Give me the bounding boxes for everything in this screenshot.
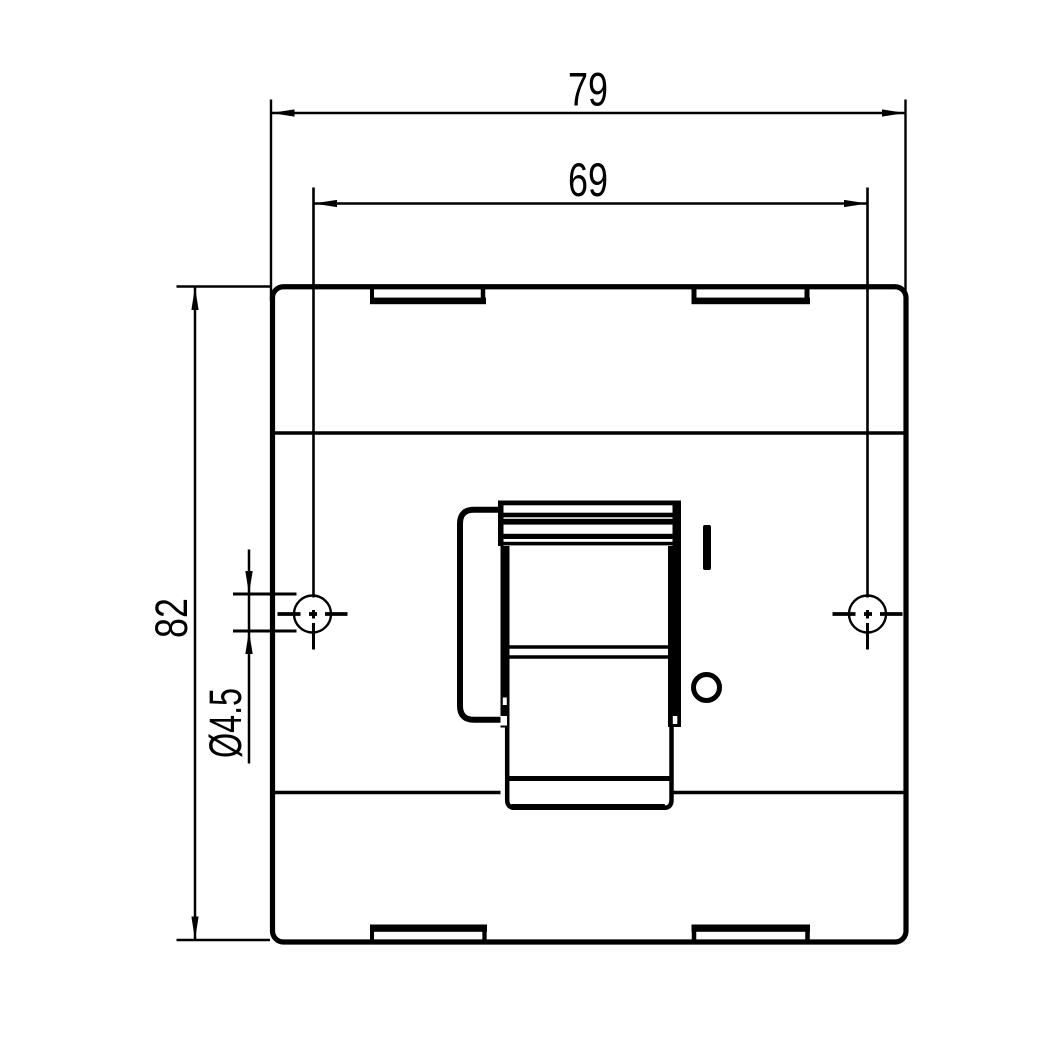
svg-text:69: 69 xyxy=(568,153,608,206)
svg-text:82: 82 xyxy=(146,598,197,638)
svg-text:79: 79 xyxy=(568,63,608,116)
svg-text:Ø4.5: Ø4.5 xyxy=(200,688,251,758)
